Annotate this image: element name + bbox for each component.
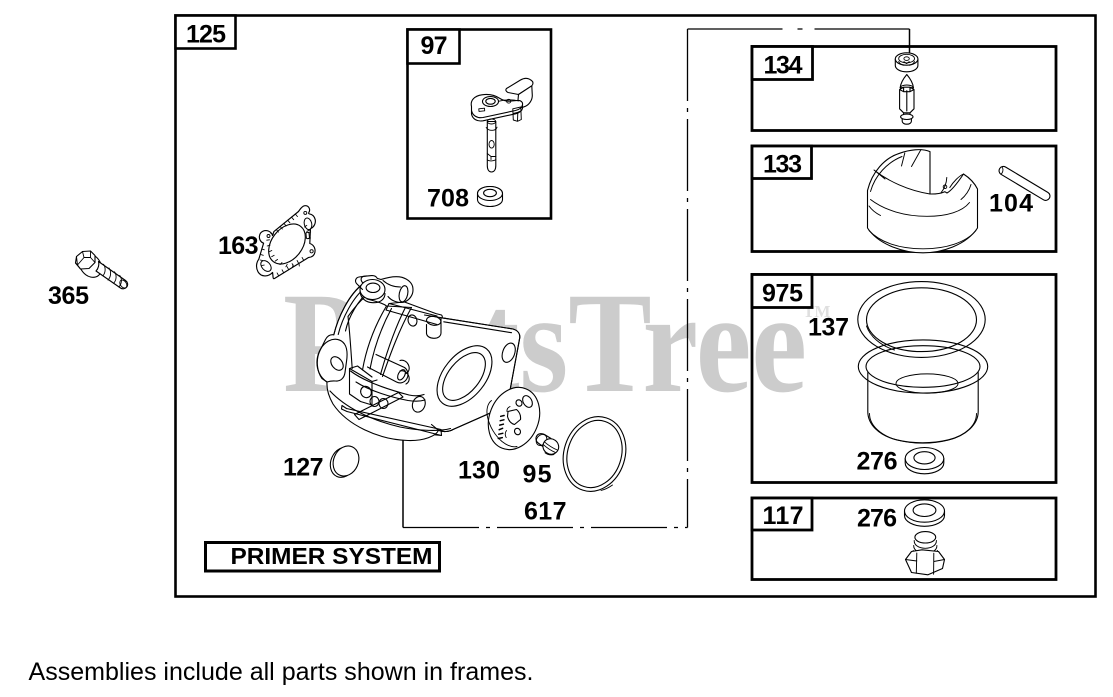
svg-text:163: 163 bbox=[218, 232, 259, 260]
svg-text:276: 276 bbox=[857, 505, 897, 533]
svg-text:617: 617 bbox=[524, 498, 567, 526]
svg-text:975: 975 bbox=[762, 280, 803, 308]
svg-text:117: 117 bbox=[763, 502, 804, 530]
svg-text:365: 365 bbox=[48, 282, 89, 310]
svg-text:Assemblies include all parts s: Assemblies include all parts shown in fr… bbox=[29, 658, 534, 686]
svg-text:PRIMER SYSTEM: PRIMER SYSTEM bbox=[231, 543, 433, 569]
svg-text:95: 95 bbox=[523, 461, 552, 489]
svg-text:125: 125 bbox=[186, 21, 226, 49]
svg-text:127: 127 bbox=[283, 454, 324, 482]
svg-text:97: 97 bbox=[421, 32, 448, 60]
svg-text:104: 104 bbox=[989, 190, 1033, 218]
svg-text:134: 134 bbox=[764, 52, 803, 80]
svg-text:130: 130 bbox=[458, 457, 500, 485]
svg-text:137: 137 bbox=[808, 314, 849, 342]
svg-text:276: 276 bbox=[857, 448, 898, 476]
svg-text:708: 708 bbox=[427, 185, 469, 213]
svg-text:133: 133 bbox=[763, 151, 802, 179]
